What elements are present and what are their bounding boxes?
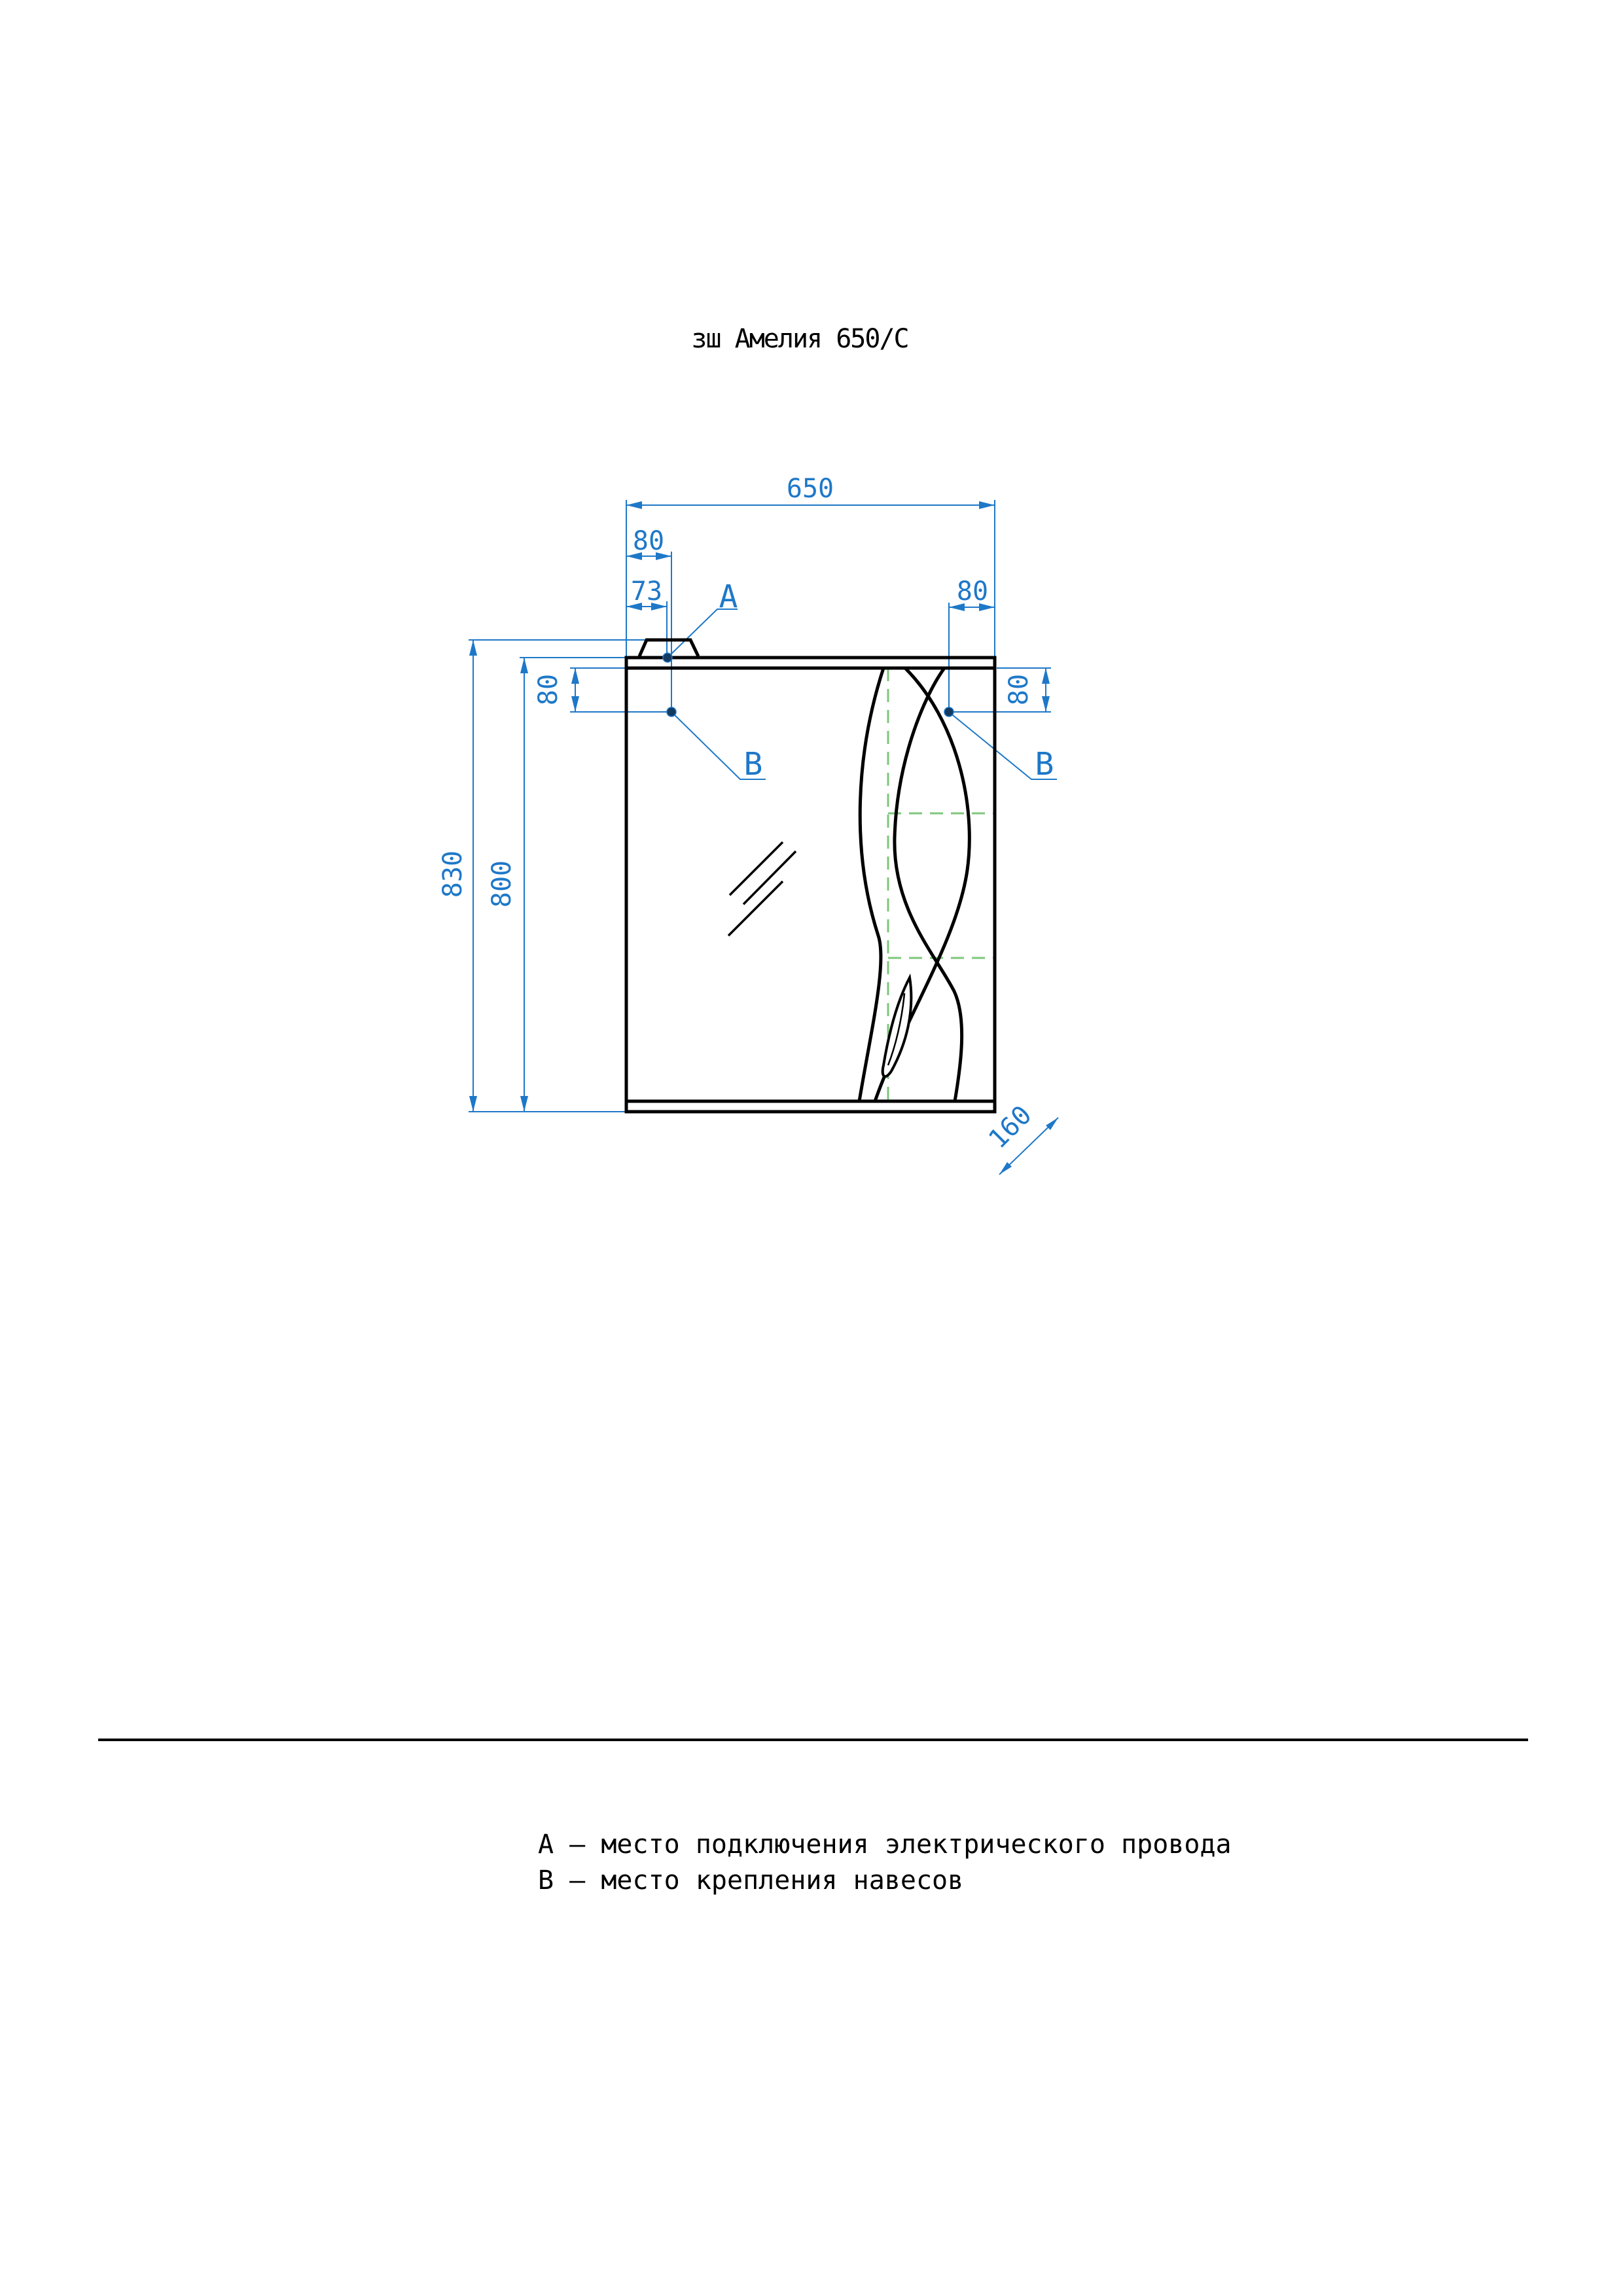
marker-b-right-label: В (1035, 746, 1054, 783)
dim-hinge-drop-left: 80 (533, 674, 563, 705)
marker-a-label: А (719, 578, 738, 615)
dim-hinge-drop-right: 80 (1004, 674, 1034, 705)
legend-line-a: А – место подключения электрического про… (538, 1829, 1232, 1860)
marker-b-right-point (944, 707, 954, 716)
legend-line-b: В – место крепления навесов (538, 1865, 963, 1896)
mirror-shine-lines (728, 842, 796, 936)
marker-a-point (663, 653, 672, 662)
cabinet-outline (626, 658, 995, 1112)
technical-drawing-canvas: зш Амелия 650/С 650 80 73 80 830 800 80 … (0, 0, 1623, 2296)
cabinet-front-view (626, 640, 995, 1112)
dim-overall-height: 830 (438, 851, 468, 898)
product-title: зш Амелия 650/С (691, 324, 908, 354)
dim-overall-width: 650 (787, 474, 834, 504)
decor-wave-left (859, 668, 883, 1101)
legend: А – место подключения электрического про… (538, 1829, 1232, 1896)
dim-hinge-offset-left: 80 (633, 526, 664, 556)
dimension-layer: 650 80 73 80 830 800 80 80 160 А В В (438, 474, 1058, 1174)
dim-body-height: 800 (487, 860, 517, 908)
decor-leaf (883, 978, 912, 1076)
drawing-sheet: зш Амелия 650/С 650 80 73 80 830 800 80 … (0, 0, 1623, 2296)
dim-hinge-offset-right: 80 (957, 576, 988, 607)
marker-b-left-point (667, 707, 676, 716)
marker-b-left-label: В (744, 746, 763, 783)
dim-power-offset-left: 73 (631, 576, 662, 607)
dim-depth: 160 (983, 1100, 1038, 1155)
